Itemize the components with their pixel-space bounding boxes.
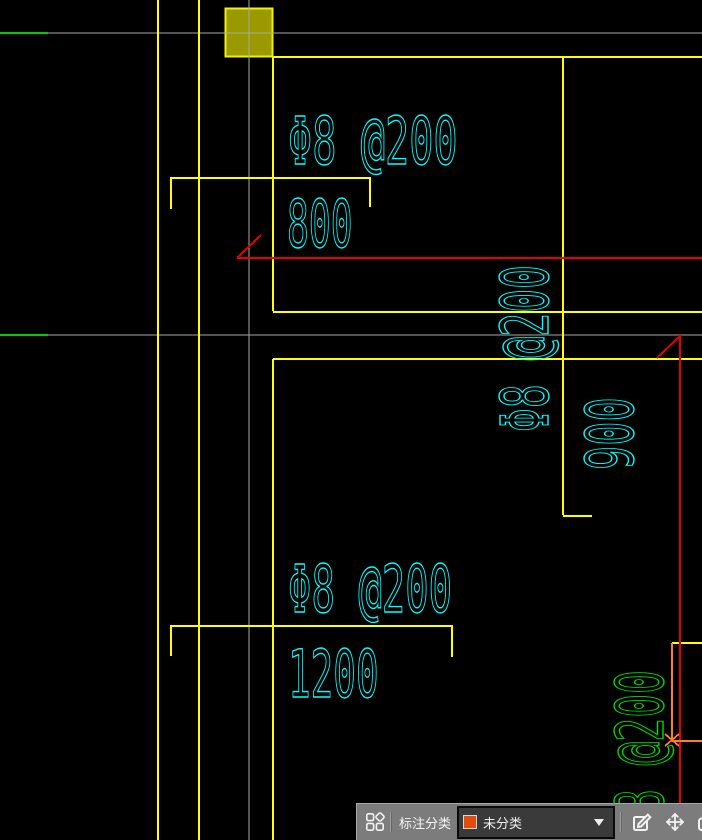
annotation-toolbar: 标注分类 未分类 [356, 803, 702, 840]
copy-icon[interactable] [695, 810, 702, 834]
annotation-bottom-length[interactable]: 1200 [288, 642, 379, 708]
category-dropdown-value: 未分类 [483, 813, 594, 832]
annotation-right-length-vertical[interactable]: 900 [578, 397, 644, 470]
annotation-top-spacing[interactable]: Φ8 @200 [288, 109, 458, 175]
cad-viewport[interactable]: Φ8 @200 800 Φ8 @200 900 Φ8 @200 1200 Φ8 … [0, 0, 702, 840]
annotation-top-length[interactable]: 800 [287, 192, 353, 258]
toolbar-separator [620, 812, 622, 832]
annotation-bottom-spacing[interactable]: Φ8 @200 [288, 557, 452, 623]
toolbar-separator [390, 812, 392, 832]
edit-annotation-icon[interactable] [631, 810, 655, 834]
annotation-category-label: 标注分类 [399, 813, 451, 832]
annotation-right-spacing-vertical[interactable]: Φ8 @200 [493, 265, 559, 432]
move-icon[interactable] [663, 810, 687, 834]
green-axis-stubs [0, 33, 48, 335]
dropdown-arrow-icon[interactable] [594, 819, 604, 826]
category-dropdown[interactable]: 未分类 [457, 806, 615, 839]
category-grid-icon[interactable] [365, 812, 385, 832]
category-color-swatch [463, 815, 477, 829]
